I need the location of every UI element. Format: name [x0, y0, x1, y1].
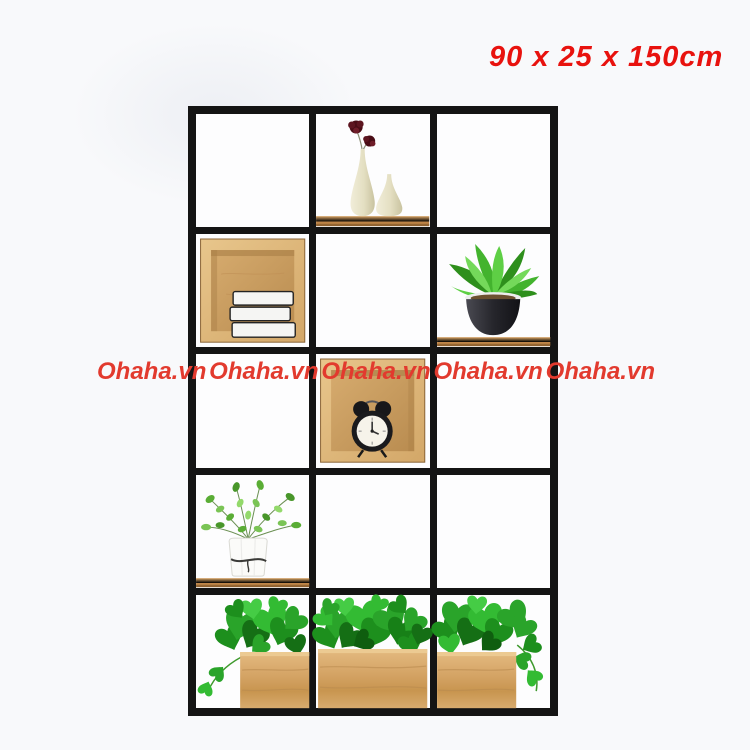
product-image: 90 x 25 x 150cm: [0, 0, 750, 750]
shelf-cell-r5c2: [316, 595, 429, 708]
pothos-planter-decor: [437, 595, 550, 708]
product-dimensions-label: 90 x 25 x 150cm: [489, 41, 723, 74]
wooden-planter-box: [318, 649, 427, 708]
shelf-cell-r2c3: [437, 234, 550, 347]
pothos-planter-decor: [316, 595, 429, 708]
white-books: [230, 292, 295, 338]
green-foliage: [449, 244, 539, 299]
shelf-cell-r4c2: [316, 475, 429, 588]
pothos-leaves: [310, 593, 434, 659]
black-pot-plant-decor: [437, 234, 550, 347]
shelf-cell-r3c3: [437, 354, 550, 467]
shelf-cell-r3c1: [196, 354, 309, 467]
shelf-cell-r5c1: [196, 595, 309, 708]
alarm-clock-box-decor: [316, 354, 429, 467]
wooden-planter-box: [437, 652, 516, 708]
storage-box-books-decor: [196, 234, 309, 347]
watermark-text: Ohaha.vn: [546, 358, 655, 386]
shelf-cell-r2c2: [316, 234, 429, 347]
pothos-leaves: [213, 595, 311, 659]
shelf-cell-r2c1: [196, 234, 309, 347]
flower-vases-decor: [316, 114, 429, 227]
shelf-cell-r1c1: [196, 114, 309, 227]
wooden-planter-box: [240, 652, 309, 708]
dark-red-flowers: [348, 121, 375, 147]
shelf-cell-r3c2: [316, 354, 429, 467]
shelf-cell-r5c3: [437, 595, 550, 708]
pothos-leaves: [429, 595, 539, 658]
shelf-grid: [188, 106, 558, 716]
shelf-cell-r1c2: [316, 114, 429, 227]
shelf-cell-r4c1: [196, 475, 309, 588]
pothos-planter-decor: [196, 595, 309, 708]
white-pot-plant-decor: [196, 475, 309, 588]
shelf-cell-r4c3: [437, 475, 550, 588]
shelf-cell-r1c3: [437, 114, 550, 227]
